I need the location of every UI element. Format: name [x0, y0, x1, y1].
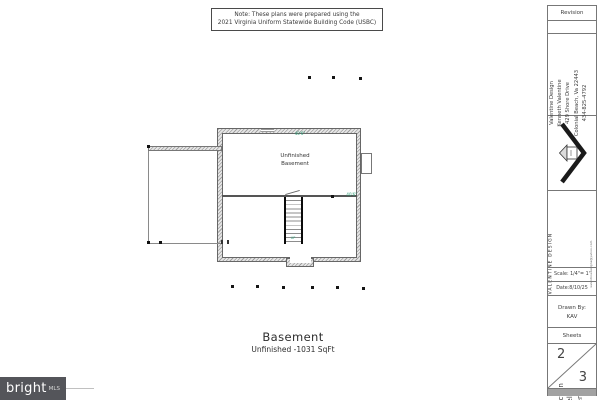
drawing-sheet: Note: These plans were prepared using th… — [0, 0, 600, 400]
title-block: Revision Valentine Design Kenneth Valent… — [547, 5, 597, 396]
corner-post — [147, 145, 150, 148]
drawn-by-value: KAV — [548, 313, 596, 322]
sheet-number: 2 — [557, 347, 565, 362]
door-jamb-tick — [221, 240, 223, 244]
sheet-total: 3 — [579, 370, 587, 385]
dimension-label-right: 40'6" — [340, 192, 357, 197]
sheet-number-box: 2 3 — [548, 344, 596, 389]
bulkhead-stoop-area — [290, 257, 311, 264]
date-row: Date:8/10/25 — [548, 282, 596, 296]
caption-title: Basement — [228, 330, 358, 344]
basement-window-opening — [261, 129, 274, 132]
deck-post-marker — [359, 77, 362, 80]
deck-post-marker — [308, 76, 311, 79]
porch-post-marker — [256, 285, 259, 288]
sheet-diagonal-line — [548, 344, 596, 388]
designer-contact-block: Valentine Design Kenneth Valentine 429 S… — [548, 34, 596, 116]
note-line-1: Note: These plans were prepared using th… — [215, 11, 379, 19]
porch-post-marker — [282, 286, 285, 289]
title-block-footer-bar — [548, 389, 596, 396]
logo-block: VALENTINE DESIGN valentinedesigns@yahoo.… — [548, 116, 596, 191]
room-label-line-2: Basement — [245, 160, 345, 168]
porch-post-marker — [231, 285, 234, 288]
bright-mls-watermark: bright MLS — [0, 377, 66, 400]
post-marker — [159, 241, 162, 244]
bright-mls-suffix: MLS — [49, 386, 60, 392]
scale-row: Scale: 1/4"= 1' — [548, 268, 596, 282]
room-label: Unfinished Basement — [245, 152, 345, 169]
building-code-note: Note: These plans were prepared using th… — [211, 8, 383, 31]
drawn-by-label: Drawn By: — [548, 304, 596, 313]
deck-post-marker — [332, 76, 335, 79]
sheet-caption: Basement Unfinished -1031 SqFt — [228, 330, 358, 354]
porch-post-marker — [311, 286, 314, 289]
note-line-2: 2021 Virginia Uniform Statewide Building… — [215, 19, 379, 27]
door-jamb-tick — [227, 240, 229, 244]
bright-mls-logo: bright — [6, 381, 47, 396]
stair-direction-label: UP — [285, 236, 301, 240]
garage-wing-outline — [148, 146, 222, 244]
project-block: Gray Construction The Daniel (on Basemen… — [548, 191, 596, 268]
drawn-by-block: Drawn By: KAV — [548, 296, 596, 328]
porch-post-marker — [336, 286, 339, 289]
garage-wing-wall — [148, 146, 222, 151]
valentine-chevron-logo-icon — [558, 120, 588, 186]
watermark-rule-line — [66, 388, 94, 389]
window-well — [361, 153, 372, 174]
room-label-line-1: Unfinished — [245, 152, 345, 160]
revision-header: Revision — [548, 6, 596, 21]
dimension-label-top: 40'6" — [280, 131, 320, 136]
sheets-header: Sheets — [548, 328, 596, 344]
caption-subtitle: Unfinished -1031 SqFt — [228, 345, 358, 354]
porch-post-marker — [362, 287, 365, 290]
revision-empty-row — [548, 21, 596, 34]
support-column-marker — [331, 195, 334, 198]
corner-post — [147, 241, 150, 244]
